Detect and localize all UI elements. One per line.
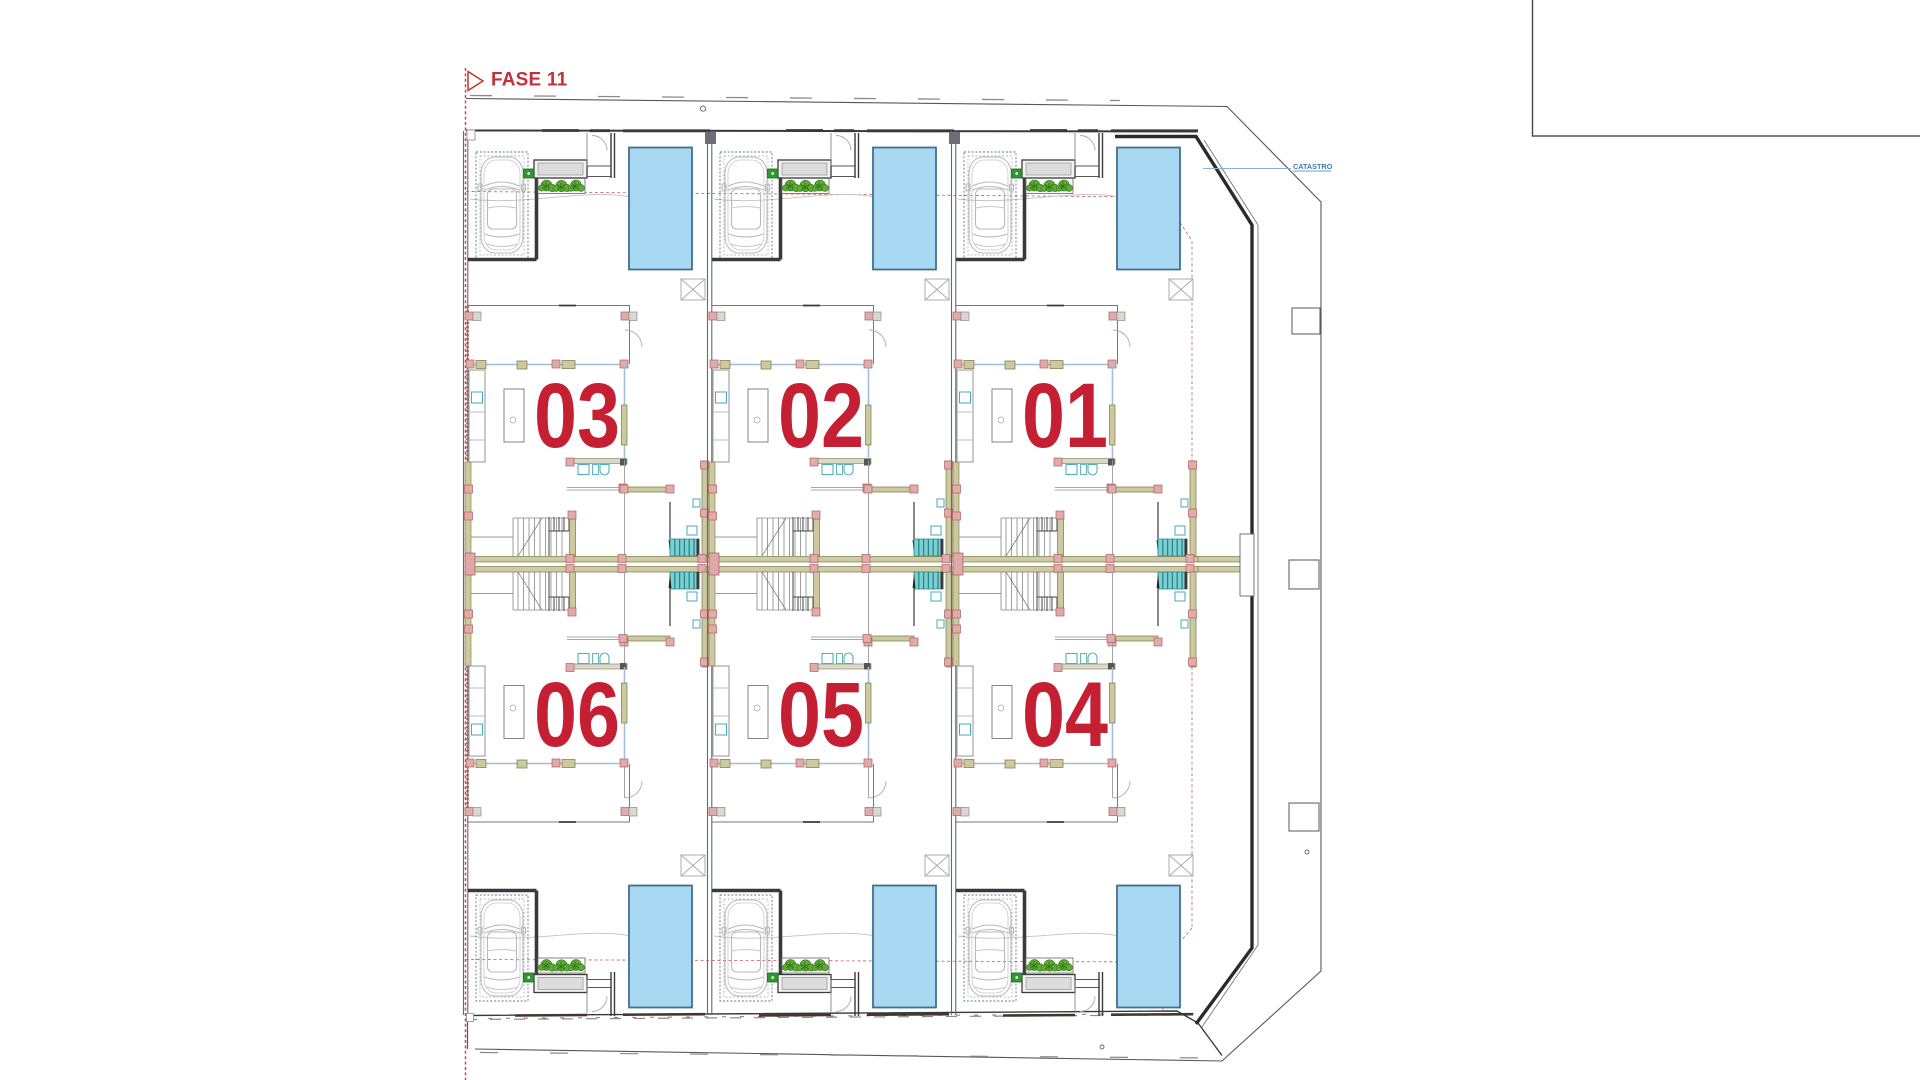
svg-text:05: 05 — [778, 664, 864, 766]
svg-text:04: 04 — [1022, 664, 1108, 766]
svg-text:06: 06 — [534, 664, 620, 766]
svg-text:01: 01 — [1022, 365, 1108, 467]
svg-text:02: 02 — [778, 365, 864, 467]
svg-text:03: 03 — [534, 365, 620, 467]
svg-text:FASE 11: FASE 11 — [491, 70, 568, 91]
svg-text:CATASTRO: CATASTRO — [1293, 162, 1333, 171]
